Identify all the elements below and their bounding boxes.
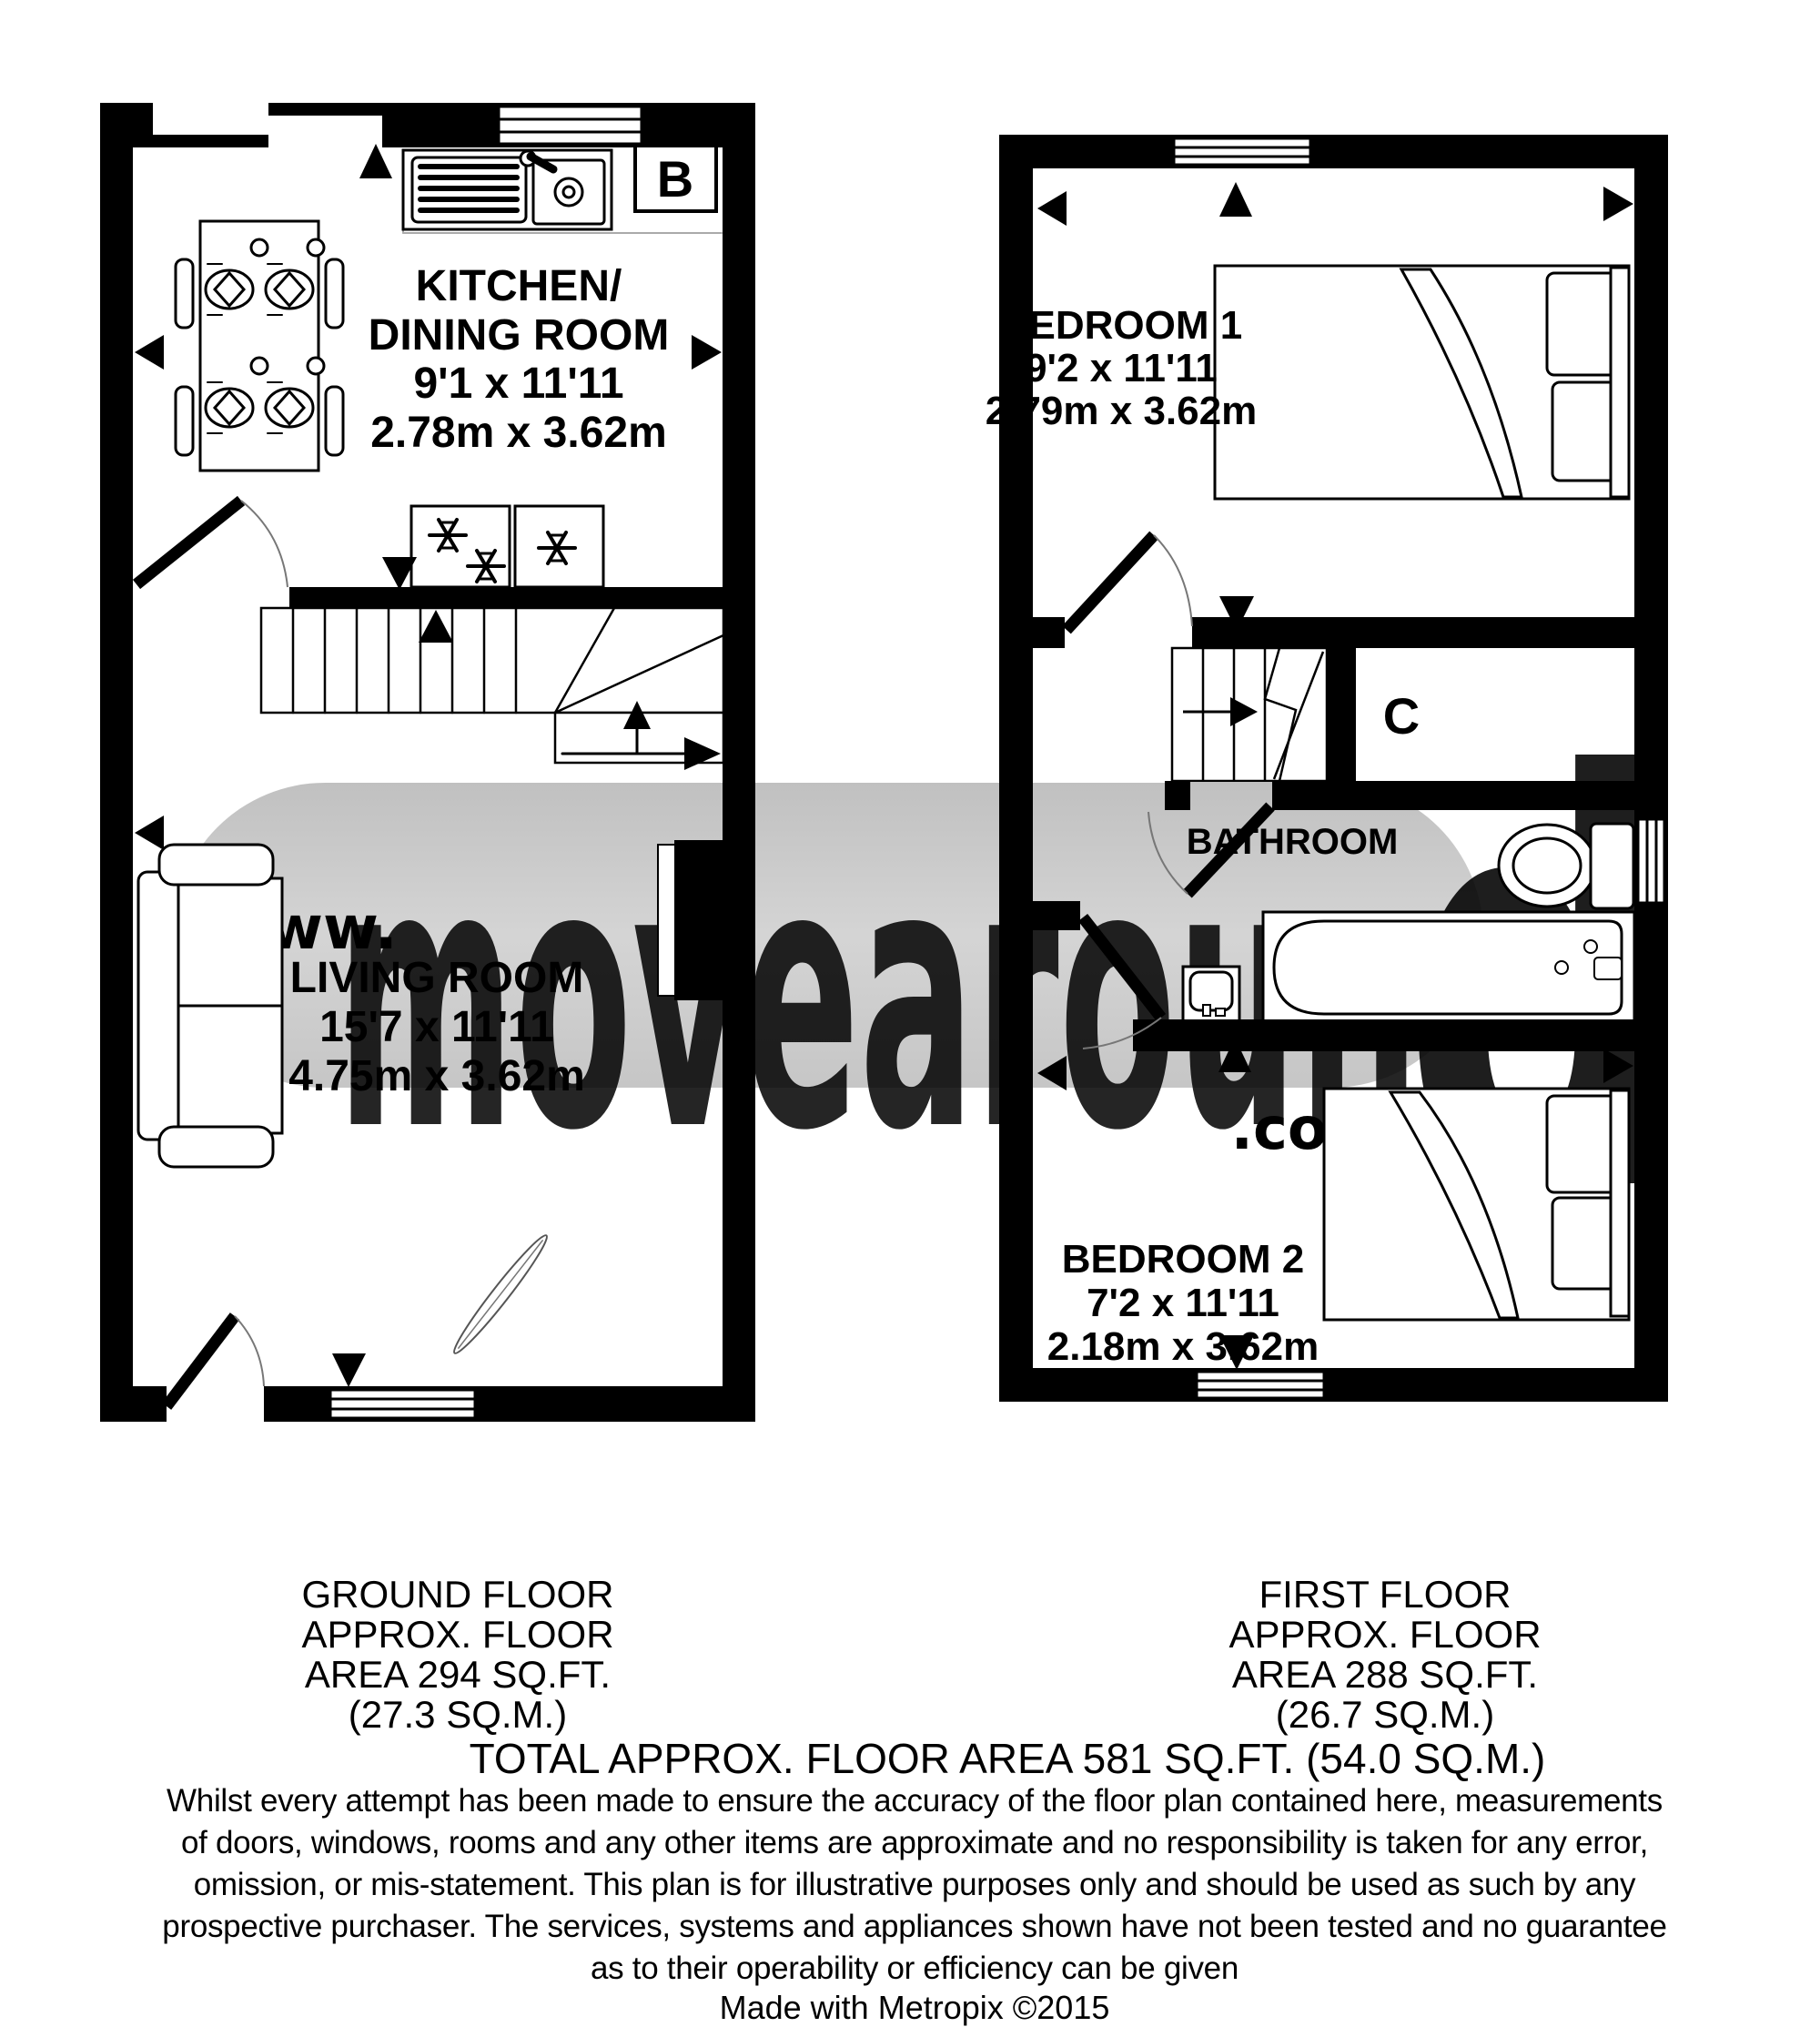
wall-ground-top-corner: [100, 103, 153, 147]
bedroom2-dims-metric: 2.18m x 3.62m: [1047, 1324, 1319, 1369]
bath-icon: [1263, 912, 1634, 1023]
stairs-icon-first: [1172, 648, 1327, 781]
disclaimer-line: Whilst every attempt has been made to en…: [167, 1783, 1663, 1819]
kitchen-label-line1: KITCHEN/: [416, 262, 622, 310]
kitchen-dims-metric: 2.78m x 3.62m: [370, 409, 667, 457]
wall-first-bottom: [999, 1368, 1668, 1402]
wall-kitchen-divider: [289, 587, 723, 608]
wall-ground-porch-high: [268, 103, 382, 116]
ground-floor-caption-line: APPROX. FLOOR: [301, 1613, 613, 1656]
wall-first-top: [999, 135, 1668, 168]
wall-bedroom1-bottom: [1192, 617, 1668, 648]
wall-bathroom-bottom: [1133, 1019, 1634, 1051]
wall-ground-left: [100, 103, 133, 1422]
bedroom2-dims-imperial: 7'2 x 11'11: [1087, 1281, 1279, 1325]
wall-bedroom1-stub: [1033, 617, 1065, 648]
first-floor-caption-line: FIRST FLOOR: [1259, 1573, 1512, 1616]
kitchen-label-line2: DINING ROOM: [369, 311, 670, 360]
bathroom-label: BATHROOM: [1187, 822, 1399, 862]
wall-bathroom-top: [1272, 781, 1634, 810]
window-bedroom2: [1197, 1372, 1324, 1398]
basin-icon: [1183, 967, 1239, 1021]
chair-icon: [326, 259, 343, 328]
living-room-dims-metric: 4.75m x 3.62m: [288, 1052, 585, 1100]
wall-ground-right: [723, 103, 755, 1422]
ground-floor-caption-line: (27.3 SQ.M.): [349, 1693, 567, 1736]
total-area-caption: TOTAL APPROX. FLOOR AREA 581 SQ.FT. (54.…: [470, 1735, 1546, 1782]
boiler-label: B: [657, 150, 693, 208]
chimney-breast: [658, 840, 723, 1000]
sofa-icon: [138, 845, 282, 1167]
floorplan-canvas: www. movearoun d .co.uk B: [0, 0, 1820, 2027]
ground-floor-caption-line: AREA 294 SQ.FT.: [305, 1653, 611, 1696]
first-floor-caption-line: APPROX. FLOOR: [1228, 1613, 1541, 1656]
wall-first-right: [1634, 135, 1668, 1402]
wall-ground-porch-low: [153, 135, 268, 147]
bedroom1-dims-imperial: 9'2 x 11'11: [1025, 346, 1218, 390]
dining-table-icon: [176, 221, 343, 471]
disclaimer-line: as to their operability or efficiency ca…: [591, 1951, 1239, 1986]
disclaimer-line: of doors, windows, rooms and any other i…: [181, 1825, 1648, 1860]
window-living-room: [330, 1390, 475, 1418]
living-room-dims-imperial: 15'7 x 11'11: [319, 1003, 554, 1051]
living-room-label: LIVING ROOM: [290, 954, 584, 1002]
credit-caption: Made with Metropix ©2015: [720, 1989, 1110, 2026]
window-bathroom: [1638, 819, 1664, 903]
wall-ground-bottom-left: [100, 1386, 167, 1422]
chair-icon: [176, 387, 193, 455]
window-kitchen: [499, 106, 642, 144]
floorplan-page: www. movearoun d .co.uk B: [0, 0, 1820, 2027]
bed-icon-bedroom2: [1324, 1089, 1629, 1320]
boiler-cupboard: B: [635, 146, 716, 211]
chair-icon: [326, 387, 343, 455]
disclaimer-line: omission, or mis-statement. This plan is…: [194, 1867, 1636, 1902]
ground-floor-caption-line: GROUND FLOOR: [301, 1573, 613, 1616]
bed-icon-bedroom1: [1215, 266, 1629, 499]
chair-icon: [176, 259, 193, 328]
disclaimer-line: prospective purchaser. The services, sys…: [162, 1909, 1666, 1944]
bedroom2-label: BEDROOM 2: [1062, 1237, 1304, 1282]
fridge-freezer-icons: [411, 506, 603, 587]
wall-bathroom-top-stub: [1165, 781, 1190, 810]
sink-icon: [403, 150, 612, 229]
window-bedroom1: [1174, 138, 1310, 165]
bedroom1-dims-metric: 2.79m x 3.62m: [986, 389, 1257, 433]
cupboard-label: C: [1383, 687, 1420, 745]
wall-bedroom2-stub: [1033, 901, 1080, 930]
wall-ground-top-block: [382, 103, 499, 147]
toilet-icon: [1499, 824, 1633, 908]
bedroom1-label: BEDROOM 1: [1000, 303, 1242, 348]
first-floor-caption-line: (26.7 SQ.M.): [1276, 1693, 1494, 1736]
first-floor-caption-line: AREA 288 SQ.FT.: [1232, 1653, 1538, 1696]
kitchen-dims-imperial: 9'1 x 11'11: [413, 360, 623, 408]
